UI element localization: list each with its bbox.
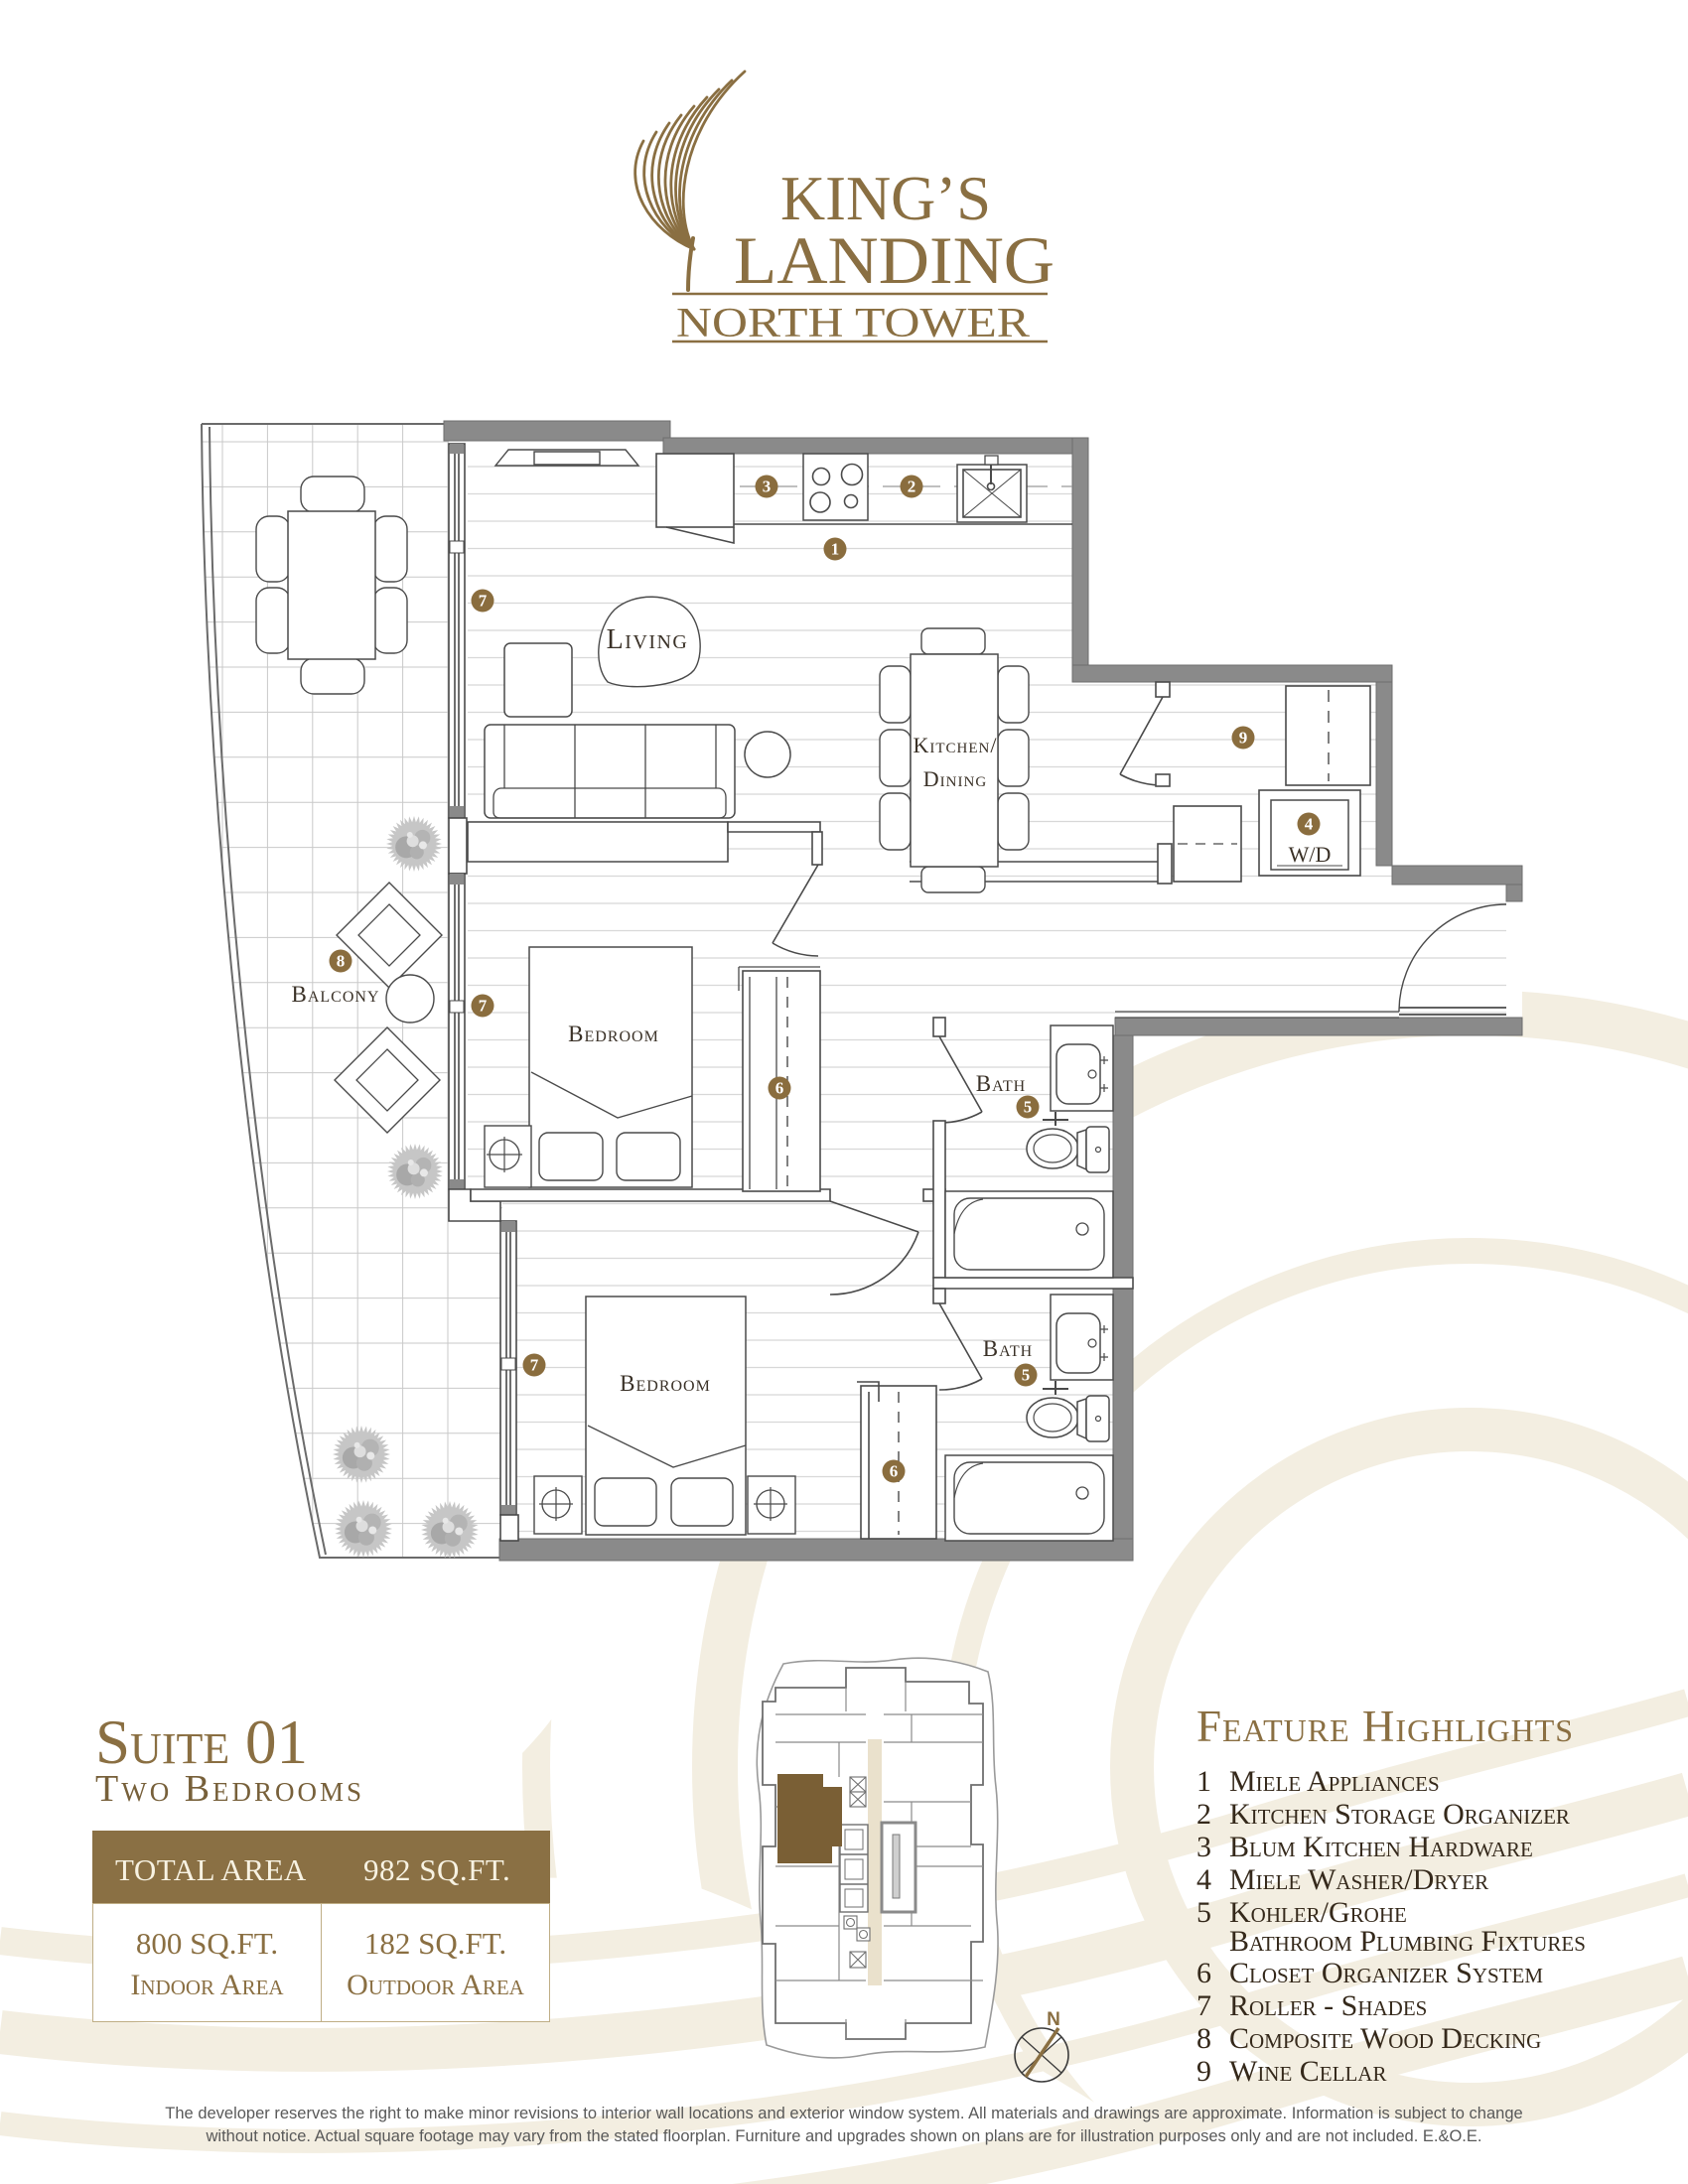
svg-text:Bath: Bath — [976, 1071, 1026, 1096]
svg-text:1: 1 — [831, 540, 840, 559]
svg-text:W/D: W/D — [1289, 842, 1332, 867]
svg-text:Balcony: Balcony — [291, 982, 379, 1007]
svg-text:N: N — [1047, 2009, 1060, 2030]
svg-text:7: 7 — [530, 1356, 539, 1375]
svg-text:4: 4 — [1305, 815, 1314, 834]
svg-text:Kitchen/: Kitchen/ — [914, 733, 998, 757]
svg-text:Dining: Dining — [923, 766, 987, 791]
svg-text:7: 7 — [479, 997, 488, 1016]
svg-text:6: 6 — [890, 1462, 899, 1481]
svg-text:3: 3 — [763, 478, 772, 496]
svg-text:2: 2 — [908, 478, 916, 496]
svg-text:Bedroom: Bedroom — [620, 1371, 711, 1396]
svg-text:7: 7 — [479, 592, 488, 611]
svg-text:NORTH TOWER: NORTH TOWER — [676, 301, 1030, 346]
svg-text:9: 9 — [1239, 729, 1248, 748]
svg-text:LANDING: LANDING — [734, 222, 1055, 298]
svg-text:6: 6 — [775, 1079, 784, 1098]
svg-text:8: 8 — [337, 952, 346, 971]
svg-text:Bath: Bath — [983, 1336, 1033, 1361]
svg-text:5: 5 — [1024, 1098, 1033, 1117]
svg-text:Bedroom: Bedroom — [568, 1022, 659, 1046]
svg-text:Living: Living — [607, 624, 689, 655]
svg-text:5: 5 — [1022, 1366, 1031, 1385]
